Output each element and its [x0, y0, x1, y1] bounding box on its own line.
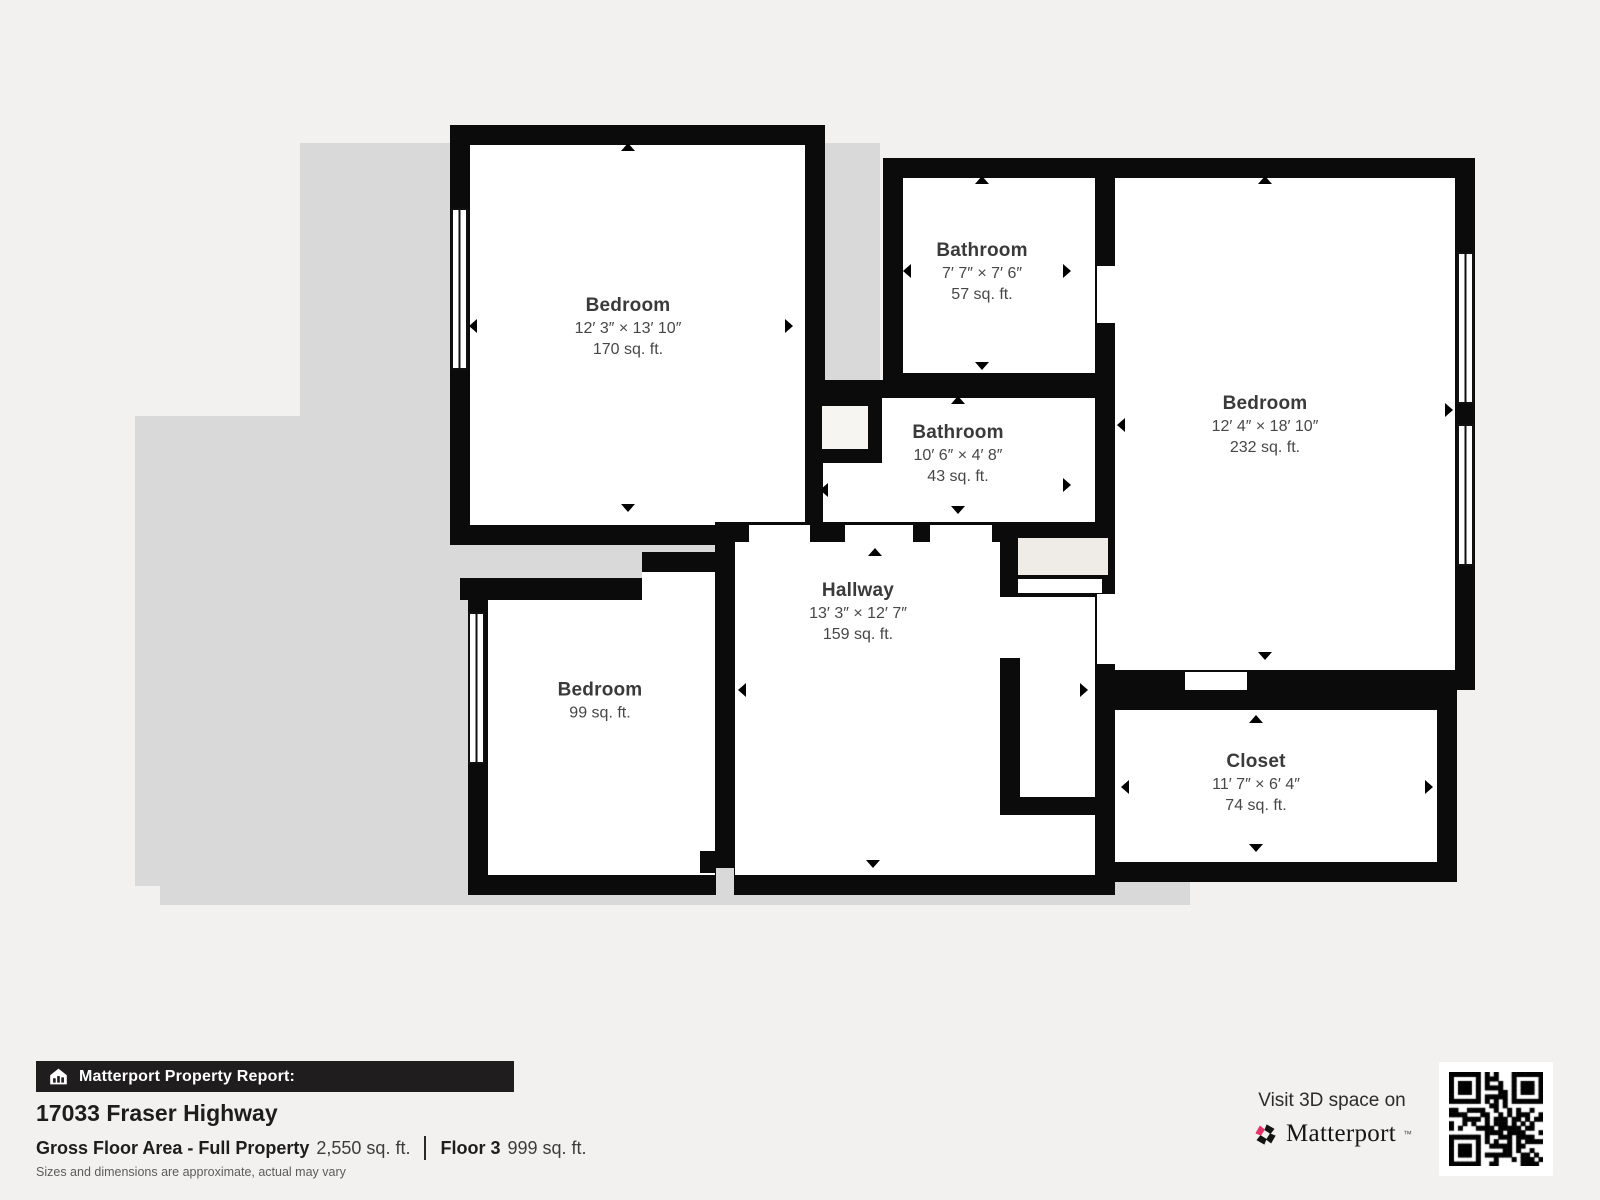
room-label-closet: Closet 11′ 7″ × 6′ 4″ 74 sq. ft. [1212, 751, 1300, 815]
room-name: Bathroom [912, 422, 1003, 444]
stair-wall-horizontal [1000, 797, 1115, 815]
measure-arrow-up [975, 176, 989, 184]
measure-arrow-left [820, 483, 828, 497]
measure-arrow-up [868, 548, 882, 556]
measure-arrow-down [621, 504, 635, 512]
room-name: Closet [1212, 751, 1300, 773]
room-label-bedroom-bottom-left: Bedroom 99 sq. ft. [558, 680, 643, 723]
report-header-bar: Matterport Property Report: [36, 1061, 514, 1092]
matterport-logo-icon [1252, 1121, 1279, 1148]
trademark-mark: ™ [1403, 1129, 1412, 1139]
measure-arrow-up [1258, 176, 1272, 184]
room-name: Bedroom [558, 680, 643, 702]
room-label-bedroom-right: Bedroom 12′ 4″ × 18′ 10″ 232 sq. ft. [1212, 393, 1319, 457]
measure-arrow-down [975, 362, 989, 370]
shower-niche [822, 406, 868, 449]
room-label-hallway: Hallway 13′ 3″ × 12′ 7″ 159 sq. ft. [809, 580, 907, 644]
room-name: Hallway [809, 580, 907, 602]
measure-arrow-down [1249, 844, 1263, 852]
room-dimensions: 13′ 3″ × 12′ 7″ [809, 605, 907, 623]
measure-arrow-left [903, 264, 911, 278]
room-name: Bathroom [936, 240, 1027, 262]
matterport-wordmark: Matterport [1286, 1120, 1396, 1148]
disclaimer-text: Sizes and dimensions are approximate, ac… [36, 1165, 346, 1179]
measure-arrow-right [1080, 683, 1088, 697]
measure-arrow-up [951, 396, 965, 404]
window-bedroom-top-left [451, 208, 468, 370]
room-name: Bedroom [575, 295, 682, 317]
measure-arrow-down [1258, 652, 1272, 660]
door-closet [1185, 672, 1247, 690]
brand-block: Visit 3D space on Matterport ™ [1237, 1090, 1427, 1148]
room-dimensions: 12′ 3″ × 13′ 10″ [575, 320, 682, 338]
hallway-nook-floor [1018, 538, 1108, 575]
measure-arrow-right [785, 319, 793, 333]
room-area: 232 sq. ft. [1212, 439, 1319, 457]
room-label-bedroom-top-left: Bedroom 12′ 3″ × 13′ 10″ 170 sq. ft. [575, 295, 682, 359]
measure-arrow-down [866, 860, 880, 868]
floor-area-value: 999 sq. ft. [507, 1138, 586, 1159]
hallway-nook-opening [1018, 579, 1102, 593]
window-bedroom-bottom-left [468, 612, 485, 764]
floor-label: Floor 3 [440, 1138, 500, 1159]
window-bedroom-right-upper [1457, 252, 1474, 404]
bedroom-step-gray [460, 548, 642, 578]
floor-area-stats: Gross Floor Area - Full Property 2,550 s… [36, 1136, 587, 1160]
measure-arrow-right [1063, 264, 1071, 278]
room-area: 170 sq. ft. [575, 341, 682, 359]
gross-floor-area-label: Gross Floor Area - Full Property [36, 1138, 309, 1159]
room-area: 74 sq. ft. [1212, 797, 1300, 815]
window-bedroom-right-lower [1457, 424, 1474, 566]
visit-3d-text: Visit 3D space on [1237, 1090, 1427, 1112]
measure-arrow-left [469, 319, 477, 333]
room-name: Bedroom [1212, 393, 1319, 415]
door-bedroom-right [1097, 594, 1117, 664]
report-label: Matterport Property Report: [79, 1068, 295, 1086]
qr-code [1439, 1062, 1553, 1176]
room-dimensions: 10′ 6″ × 4′ 8″ [912, 447, 1003, 465]
house-chart-icon [48, 1066, 69, 1087]
measure-arrow-left [738, 683, 746, 697]
door-bathroom-middle-b [930, 525, 992, 548]
measure-arrow-up [1249, 715, 1263, 723]
measure-arrow-down [951, 506, 965, 514]
measure-arrow-right [1425, 780, 1433, 794]
gross-floor-area-value: 2,550 sq. ft. [316, 1138, 410, 1159]
measure-arrow-left [1117, 418, 1125, 432]
room-label-bathroom-top: Bathroom 7′ 7″ × 7′ 6″ 57 sq. ft. [936, 240, 1027, 304]
stats-divider [424, 1136, 426, 1160]
room-bedroom-bottom-left [468, 552, 738, 895]
property-address: 17033 Fraser Highway [36, 1100, 278, 1127]
door-bathroom-top-ensuite [1097, 266, 1117, 323]
measure-arrow-right [1063, 478, 1071, 492]
floorplan-report-page: { "plan": { "rooms": [ {"id":"bedroom-to… [0, 0, 1600, 1200]
room-area: 99 sq. ft. [558, 705, 643, 723]
room-dimensions: 11′ 7″ × 6′ 4″ [1212, 776, 1300, 794]
door-bathroom-middle-a [845, 525, 913, 548]
room-dimensions: 12′ 4″ × 18′ 10″ [1212, 418, 1319, 436]
door-bedroom-top-left [749, 525, 810, 548]
stair-wall-vertical [1000, 658, 1020, 815]
room-area: 43 sq. ft. [912, 468, 1003, 486]
measure-arrow-left [1121, 780, 1129, 794]
bedroom-step-wall [460, 578, 642, 600]
room-area: 57 sq. ft. [936, 286, 1027, 304]
room-label-bathroom-middle: Bathroom 10′ 6″ × 4′ 8″ 43 sq. ft. [912, 422, 1003, 486]
measure-arrow-right [1445, 403, 1453, 417]
room-dimensions: 7′ 7″ × 7′ 6″ [936, 265, 1027, 283]
measure-arrow-up [621, 143, 635, 151]
stair-opening [716, 868, 734, 897]
room-area: 159 sq. ft. [809, 626, 907, 644]
